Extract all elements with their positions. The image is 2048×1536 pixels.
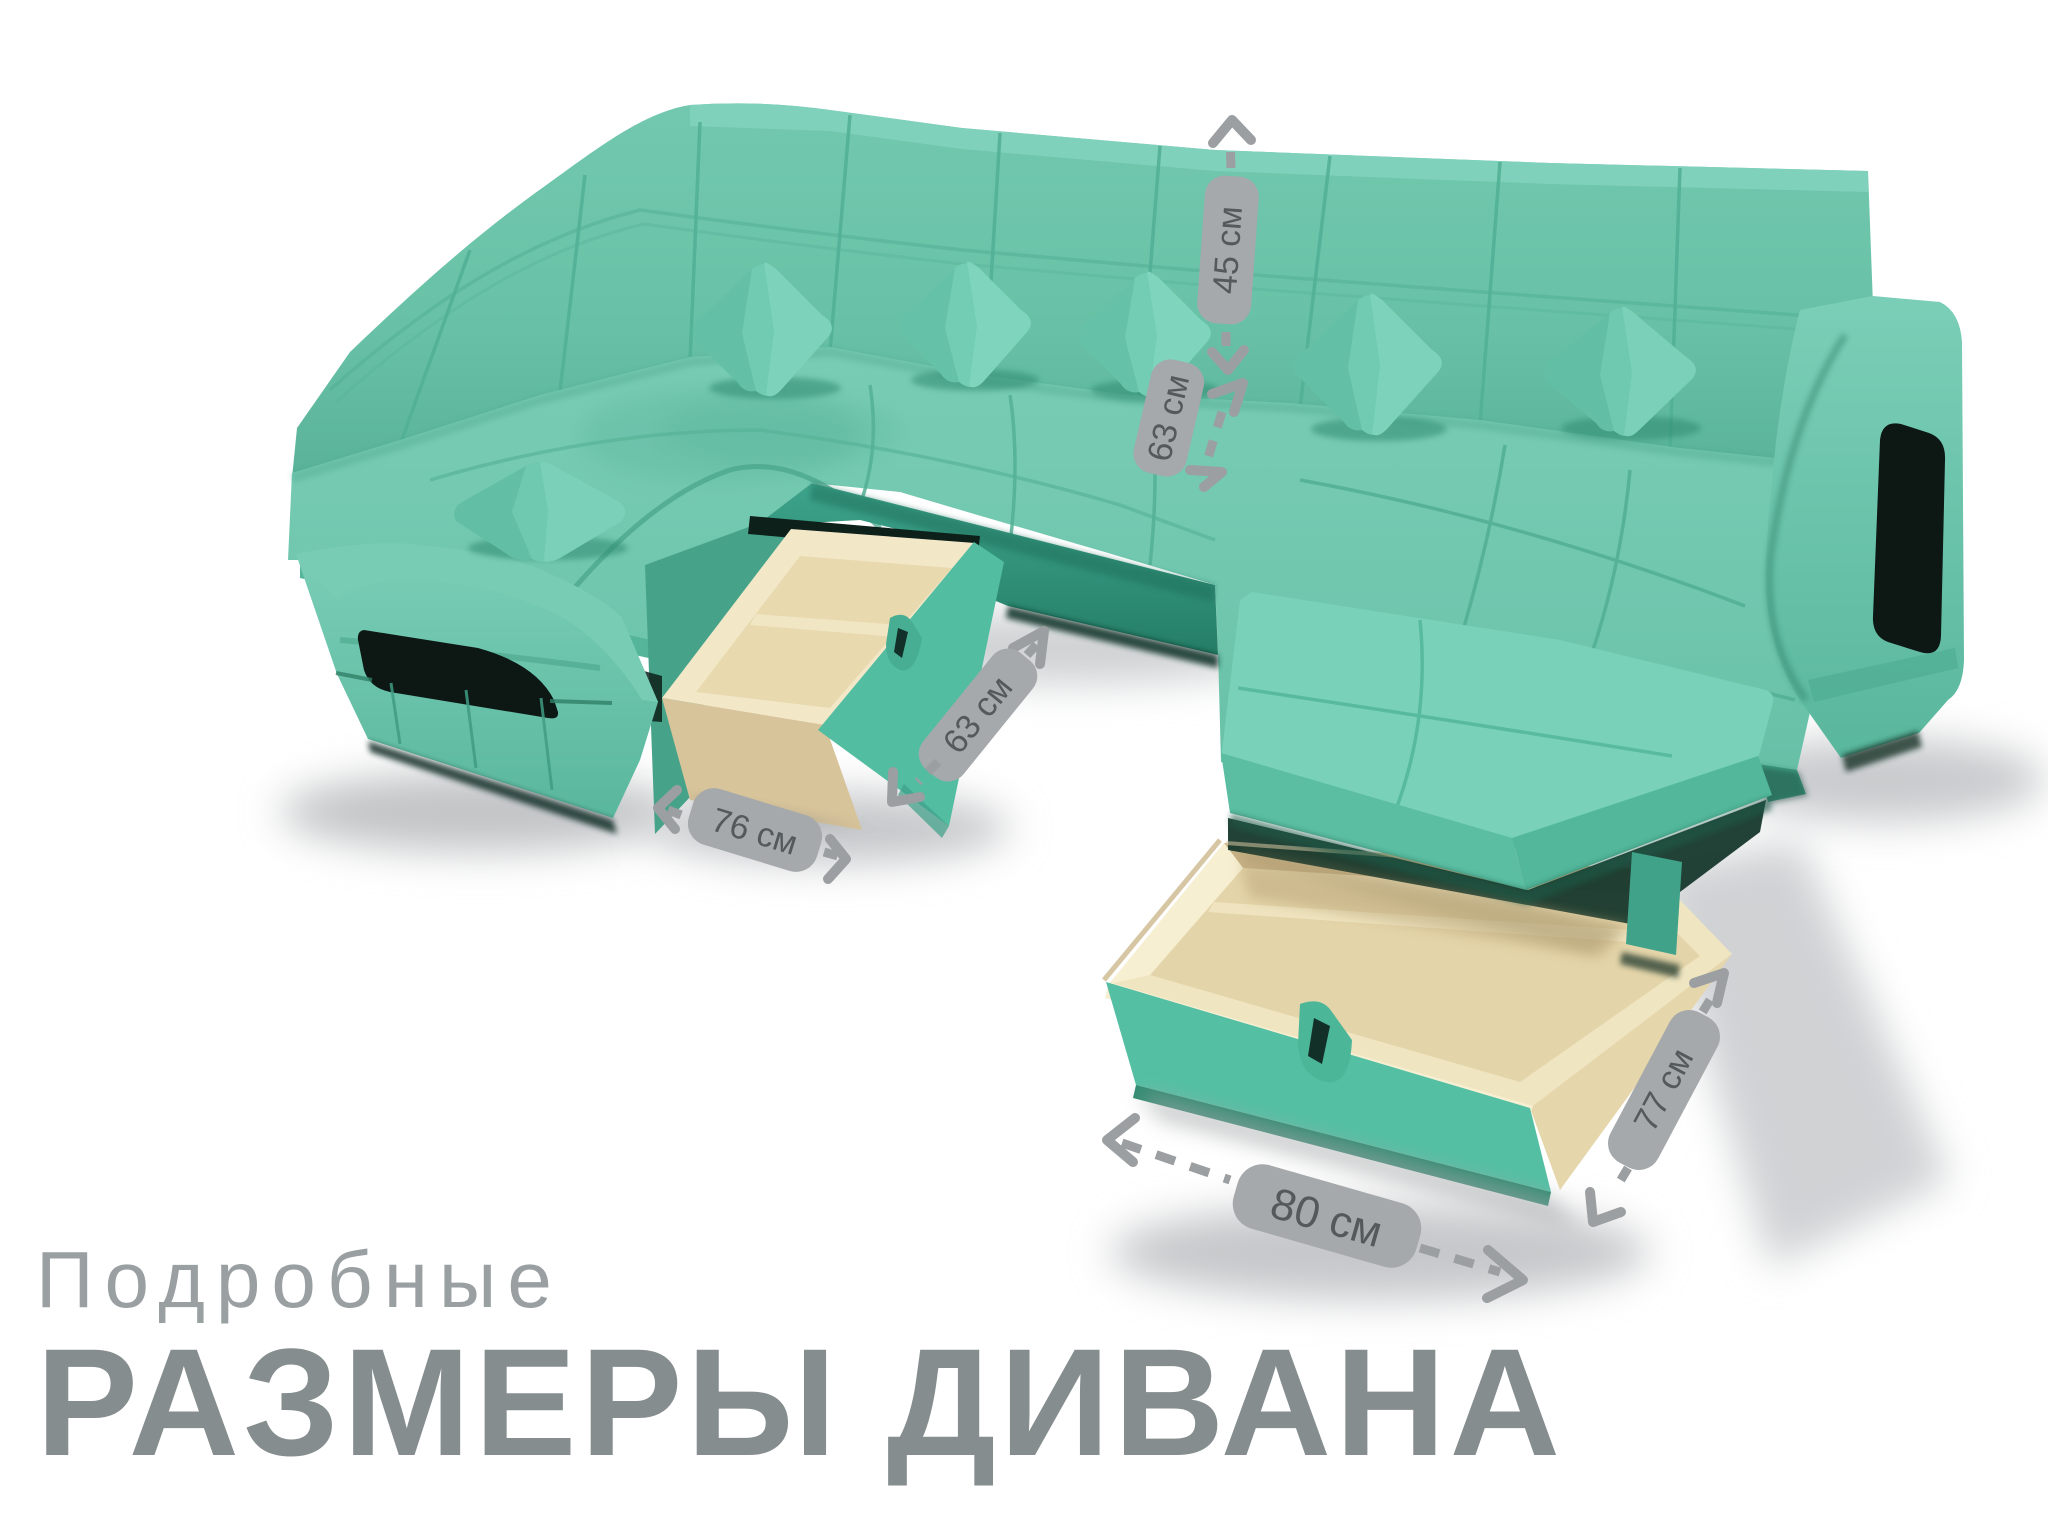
svg-text:45 см: 45 см xyxy=(1206,205,1250,295)
